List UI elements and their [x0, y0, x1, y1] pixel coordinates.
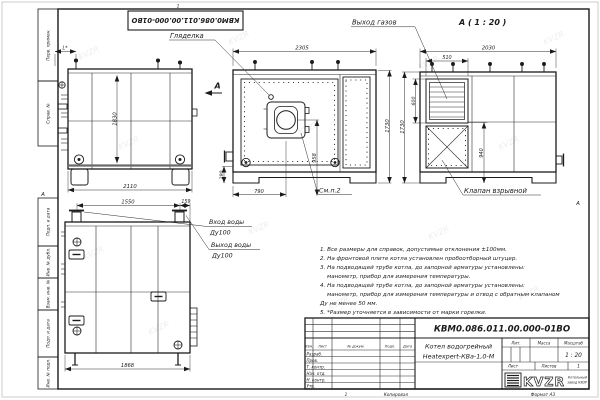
water-outlet-label: Выход воды — [211, 242, 251, 249]
dim-text: L* — [62, 46, 68, 52]
document-designation: КВМ0.086.011.00.000-01ВО — [434, 325, 570, 335]
lifting-lugs — [254, 61, 340, 71]
dim-grille-600: 600 — [411, 79, 426, 123]
dim-bottom-1868: 1868 — [65, 355, 190, 372]
bolt-dots — [346, 80, 367, 165]
dim-width-2030: 2030 — [420, 45, 556, 68]
watermark: KVZR — [77, 44, 101, 61]
watermark-layer: KVZR KVZR KVZR KVZR KVZR KVZR KVZR KVZR … — [77, 29, 566, 336]
dim-text: 790 — [254, 189, 264, 195]
zone-mark-left: А — [40, 192, 45, 198]
product-name: Heatexpert-КВа-1,0-М — [423, 353, 495, 361]
dim-text: 958 — [312, 153, 318, 163]
dim-text: 2305 — [295, 45, 309, 51]
watermark: KVZR — [542, 29, 566, 46]
dim-text: 2030 — [482, 45, 496, 51]
scale-label: Масштаб — [564, 341, 584, 346]
lifting-lugs — [431, 63, 546, 73]
view-direction-arrow: А — [205, 82, 223, 96]
watermark: KVZR — [117, 134, 141, 151]
dim-text: 1730 — [385, 119, 391, 133]
col-header: Дата — [402, 344, 412, 348]
drawing-canvas: KVZR KVZR KVZR KVZR KVZR KVZR KVZR KVZR … — [0, 0, 600, 400]
product-name: Котел водогрейный — [425, 343, 492, 351]
watermark: KVZR — [147, 319, 171, 336]
logo-caption: Котельный — [568, 376, 588, 380]
dim-text: 2110 — [123, 184, 137, 190]
view-arrow-label: А — [214, 82, 221, 91]
base-plinth — [420, 172, 556, 183]
dim-text: 1830 — [112, 112, 118, 126]
rear-stub-pipe — [556, 154, 564, 167]
dim-text: 1550 — [121, 200, 135, 206]
view-piping: 1550 159 1868 Вход воды Ду100 Выход воды… — [61, 199, 260, 371]
watermark: KVZR — [497, 134, 521, 151]
row-label: Пров. — [307, 358, 319, 363]
dim-text: 290 — [219, 171, 225, 180]
watermark: KVZR — [227, 29, 251, 46]
watermark: KVZR — [417, 54, 441, 71]
note-line: 4. На подводящей трубе котла, до запорно… — [320, 283, 525, 289]
note-line: 3. На подводящей трубе котла, до запорно… — [320, 265, 525, 271]
dim-text: 940 — [479, 148, 485, 158]
scale-value: 1 : 20 — [565, 353, 582, 359]
gas-outlet-label: Выход газов — [352, 19, 397, 27]
dim-text: 1868 — [121, 363, 135, 369]
col-header: № докум. — [346, 344, 364, 348]
note-line: манометр, прибор для измерения температу… — [327, 292, 560, 298]
logo-caption: завод КВЗР — [567, 381, 587, 385]
boiler-body — [68, 69, 192, 169]
margin-label: Взам. инв. № — [46, 279, 51, 308]
dim-base-290: 290 — [219, 167, 233, 184]
dim-pipes-1550: 1550 — [77, 200, 180, 210]
row-label: Нач. отд. — [307, 371, 326, 376]
format-label: Формат А3 — [531, 392, 556, 398]
note-line: 1. Все размеры для справок, допустимые о… — [320, 247, 507, 253]
margin-label: Инв. № подл. — [46, 359, 51, 388]
row-label: Т. контр. — [307, 364, 326, 369]
col-header: Подп. — [385, 344, 396, 348]
zone-mark-right: А — [575, 201, 580, 207]
row-label: Разраб. — [307, 351, 323, 356]
panel-seams — [65, 226, 190, 353]
arrowhead — [205, 90, 213, 95]
label-water-inlet: Вход воды Ду100 — [84, 212, 252, 237]
label-see-note: См.п.2 — [301, 133, 352, 195]
logo-text: KVZR — [523, 374, 565, 389]
water-outlet-dn: Ду100 — [211, 253, 233, 260]
bolt-dots — [245, 83, 335, 162]
sheets-label: Листов — [541, 364, 558, 369]
drawing-sheet: KVZR KVZR KVZR KVZR KVZR KVZR KVZR KVZR … — [0, 0, 600, 400]
base-plinth — [233, 172, 376, 183]
side-panel — [343, 77, 370, 168]
view-rear: 2030 510 600 1730 940 Выход газов А ( 1 … — [351, 18, 564, 195]
view-front: 2305 1730 958 790 290 Гляделка См. — [169, 32, 392, 197]
peephole-label: Гляделка — [170, 32, 204, 40]
note-line: манометр, прибор для измерения температу… — [327, 274, 471, 280]
stamp-designation: КВМ0.086.011.00.000-01ВО — [131, 16, 239, 24]
margin-label: Перв. примен. — [46, 29, 51, 60]
view-a-title: А ( 1 : 20 ) — [458, 18, 506, 27]
top-stamp: КВМ0.086.011.00.000-01ВО — [128, 11, 243, 30]
fold-mark-top: 1 — [177, 4, 180, 10]
title-block: Изм. Лист № докум. Подп. Дата Разраб. Пр… — [305, 318, 589, 389]
panel-seams — [68, 73, 192, 169]
margin-label: Подп. и дата — [46, 207, 51, 236]
lit-label: Лит. — [510, 341, 520, 346]
sheets-value: 1 — [577, 364, 580, 370]
fold-mark-bottom: 1 — [345, 392, 348, 398]
water-inlet-pipe — [69, 211, 84, 223]
copied-label: Копировал — [384, 392, 409, 398]
piping-fittings — [61, 232, 197, 365]
burner-opening — [277, 111, 296, 130]
bottom-flanges — [74, 155, 184, 164]
front-door-frame — [241, 79, 338, 165]
note-line: Ду не менее 50 мм. — [319, 301, 378, 307]
watermark: KVZR — [427, 224, 451, 241]
row-label: Утв. — [307, 384, 315, 389]
view-side: L* 1830 2110 — [55, 46, 197, 193]
company-logo: KVZR Котельный завод КВЗР — [505, 373, 588, 389]
water-inlet-dn: Ду100 — [209, 230, 231, 237]
gas-outlet-grille — [426, 79, 468, 123]
boiler-body-piping — [65, 222, 190, 353]
water-inlet-label: Вход воды — [209, 219, 244, 226]
water-outlet-pipe — [172, 211, 187, 223]
dim-text: 1730 — [400, 120, 406, 134]
dim-text: 159 — [181, 199, 190, 205]
dim-height-1830: 1830 — [112, 76, 118, 164]
margin-label: Инв. № дубл. — [46, 248, 51, 277]
sheet-label: Лист — [507, 364, 519, 369]
col-header: Изм. — [305, 344, 313, 348]
mass-label: Масса — [538, 341, 551, 346]
explosion-valve-label: Клапан взрывной — [464, 187, 527, 195]
dim-height-1730: 1730 — [378, 71, 392, 184]
margin-label: Справ. № — [46, 103, 51, 124]
note-line: 5. *Размер уточняется в зависимости от м… — [320, 310, 487, 316]
dim-height-1730: 1730 — [400, 72, 420, 183]
dim-mid-940: 940 — [468, 123, 487, 184]
revision-grid: Изм. Лист № докум. Подп. Дата Разраб. Пр… — [305, 318, 415, 389]
technical-notes: 1. Все размеры для справок, допустимые о… — [319, 247, 560, 316]
dim-text: 600 — [411, 97, 417, 106]
col-header: Лист — [317, 344, 328, 348]
watermark: KVZR — [247, 219, 271, 236]
margin-label: Подп. и дата — [46, 319, 51, 348]
side-bracket — [192, 109, 197, 116]
dim-width-2110: 2110 — [68, 171, 192, 193]
lifting-lugs — [74, 59, 181, 69]
watermark: KVZR — [82, 244, 106, 261]
dim-text: 510 — [442, 55, 451, 61]
note-line: 2. На фронтовой плите котла установлен п… — [320, 256, 517, 262]
support-leg — [172, 169, 189, 185]
see-note-label: См.п.2 — [319, 187, 341, 195]
row-label: Н. контр. — [307, 377, 326, 382]
front-stub-pipe — [225, 151, 234, 163]
support-leg — [71, 169, 88, 185]
explosion-valve-panel — [426, 126, 468, 168]
